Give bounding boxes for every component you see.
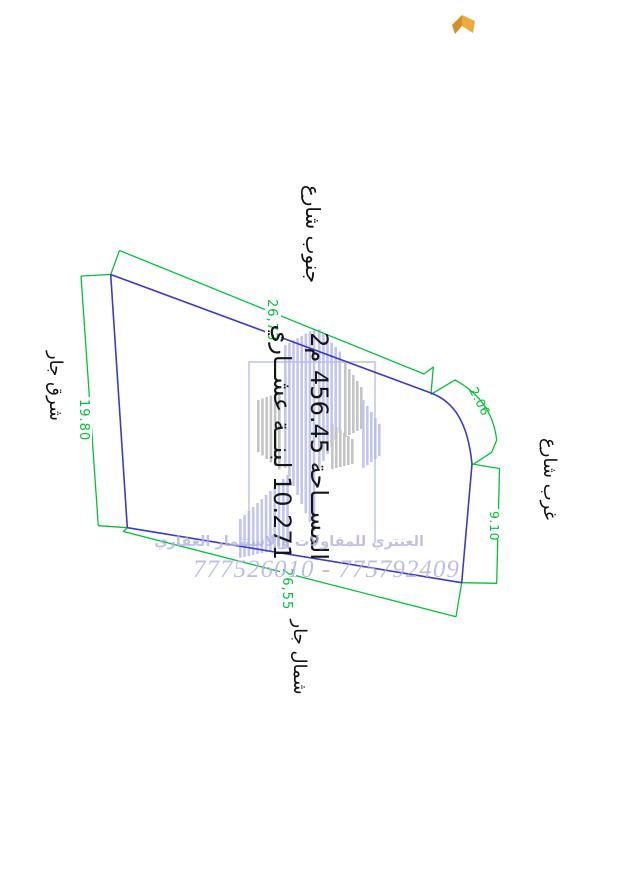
logo-bar <box>347 436 350 465</box>
logo-bar <box>339 352 342 434</box>
watermark-phone-numbers: 777526010 - 775792409 <box>193 556 429 584</box>
area-value: المســاحة 456.45 م2 <box>300 368 337 560</box>
logo-bar <box>362 400 365 468</box>
logo-bar <box>257 400 260 452</box>
logo-bar <box>378 424 381 456</box>
dim-west-side: 9.10 <box>487 511 502 541</box>
area-libna-value: 10.271 لبنــة عشــاري <box>263 368 300 560</box>
label-north-neighbor: شمال جار <box>286 601 312 713</box>
logo-bar <box>356 381 359 431</box>
logo-bar <box>351 439 354 464</box>
label-west-street: غرب شارع <box>536 428 562 530</box>
logo-bar <box>348 369 351 435</box>
dim-east-side: 19.80 <box>76 399 91 441</box>
logo-bar <box>344 363 347 437</box>
dim-corner-arc: 2.06 <box>466 385 493 419</box>
logo-bar <box>352 375 355 433</box>
book-icon <box>452 15 475 34</box>
label-south-street: جنوب شارع <box>300 177 326 291</box>
survey-sheet: 26,73 19.80 2.06 9.10 26,55 جنوب شارع شر… <box>0 0 620 876</box>
logo-bar <box>339 430 342 467</box>
label-east-neighbor: شرق جار <box>42 325 68 447</box>
logo-bar <box>370 412 373 462</box>
logo-bar <box>343 433 346 466</box>
watermark-company-name: العنتري للمقاولات والاستثمار العقاري <box>200 534 424 550</box>
logo-bar <box>366 406 369 465</box>
area-annotation: المســاحة 456.45 م2 10.271 لبنــة عشــار… <box>263 368 337 560</box>
